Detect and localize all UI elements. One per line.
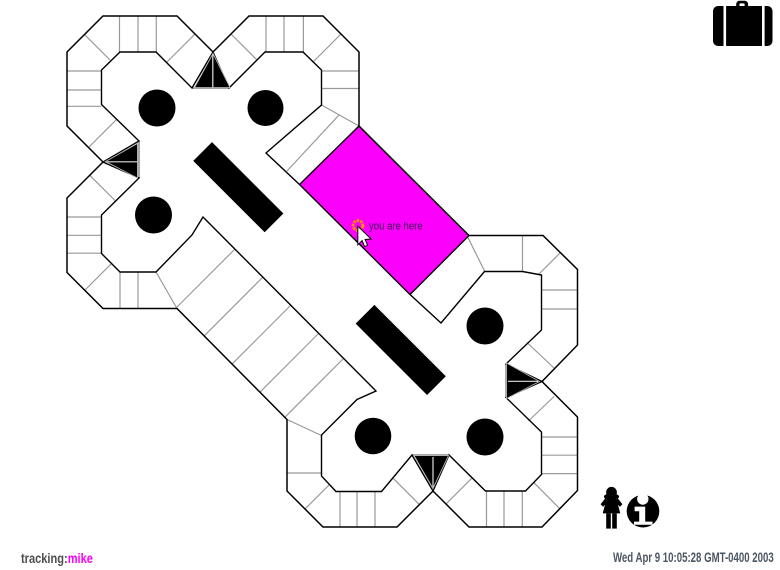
svg-text:tracking:mike: tracking:mike <box>21 551 93 566</box>
svg-text:you are here: you are here <box>369 221 423 233</box>
svg-text:Wed Apr 9 10:05:28 GMT-0400 20: Wed Apr 9 10:05:28 GMT-0400 2003 <box>613 550 774 565</box>
